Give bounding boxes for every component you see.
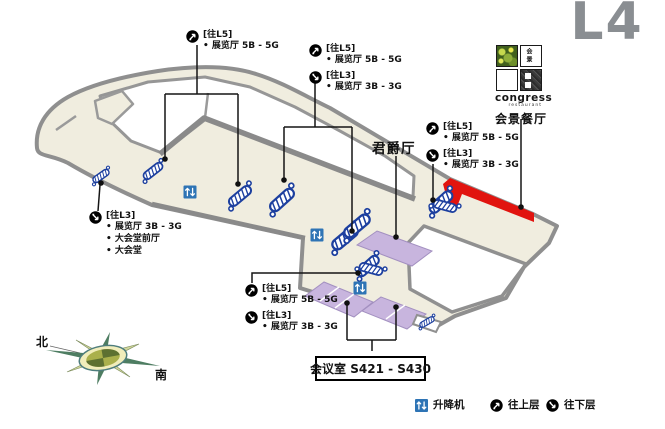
elevator-icon (354, 282, 367, 295)
callout-item: • 大会堂前厅 (106, 233, 182, 245)
callout-top-mid: [往L5] • 展览厅 5B - 5G [往L3] • 展览厅 3B - 3G (309, 44, 402, 98)
callout-tag: [往L3] (262, 311, 338, 321)
callout-bottom: [往L5] • 展览厅 5B - 5G [往L3] • 展览厅 3B - 3G (245, 284, 338, 338)
compass-north-label: 北 (36, 333, 48, 350)
callout-right: [往L5] • 展览厅 5B - 5G [往L3] • 展览厅 3B - 3G (426, 122, 519, 176)
down-level-icon (426, 149, 439, 162)
callout-dot (355, 270, 361, 276)
callout-item: • 展览厅 3B - 3G (443, 159, 519, 171)
meeting-rooms-box: 会议室 S421 - S430 (315, 356, 426, 381)
callout-dot (393, 304, 399, 310)
callout-dot (349, 228, 355, 234)
compass-rose (46, 332, 160, 385)
callout-left: [往L3] • 展览厅 3B - 3G • 大会堂前厅 • 大会堂 (89, 211, 182, 262)
callout-top-left: [往L5] • 展览厅 5B - 5G (186, 30, 279, 57)
callout-item: • 展览厅 5B - 5G (262, 294, 338, 306)
callout-dot (281, 177, 287, 183)
callout-dot (235, 181, 241, 187)
callout-item: • 展览厅 3B - 3G (262, 321, 338, 333)
callout-tag: [往L3] (106, 211, 182, 221)
callout-tag: [往L5] (262, 284, 338, 294)
callout-dot (98, 180, 104, 186)
down-level-icon (245, 311, 258, 324)
logo-noise-square (520, 69, 542, 91)
up-level-icon (309, 44, 322, 57)
elevator-icon (415, 399, 428, 412)
up-level-icon (490, 399, 503, 412)
callout-dot (430, 197, 436, 203)
logo-leaf-square (496, 45, 518, 67)
callout-dot (344, 300, 350, 306)
callout-tag: [往L5] (203, 30, 279, 40)
up-level-icon (186, 30, 199, 43)
legend-elevator-label: 升降机 (433, 399, 465, 412)
callout-dot (162, 156, 168, 162)
callout-line-left (98, 185, 100, 211)
legend-down: 往下层 (546, 399, 596, 412)
logo-blank-square (496, 69, 518, 91)
elevator-icon (184, 186, 197, 199)
callout-item: • 展览厅 5B - 5G (326, 54, 402, 66)
callout-dot (393, 234, 399, 240)
restaurant-name: 会景餐厅 (495, 110, 555, 127)
callout-item: • 大会堂 (106, 245, 182, 257)
callout-item: • 展览厅 5B - 5G (203, 40, 279, 52)
callout-item: • 展览厅 3B - 3G (326, 81, 402, 93)
level-title: L4 (556, 0, 658, 52)
floorplan-page: L4 [往L5] • 展览厅 5B - 5G [往L5] • 展览厅 5B - … (0, 0, 665, 429)
callout-tag: [往L3] (443, 149, 519, 159)
legend-up-label: 往上层 (508, 399, 540, 412)
compass-south-label: 南 (155, 366, 167, 383)
callout-item: • 展览厅 3B - 3G (106, 221, 182, 233)
restaurant-logo-subword: restaurant (495, 104, 542, 108)
restaurant-logo-image: 会 景 (496, 45, 542, 91)
down-level-icon (546, 399, 559, 412)
up-level-icon (245, 284, 258, 297)
legend-up: 往上层 (490, 399, 540, 412)
up-level-icon (426, 122, 439, 135)
down-level-icon (309, 71, 322, 84)
legend-down-label: 往下层 (564, 399, 596, 412)
callout-tag: [往L5] (326, 44, 402, 54)
legend-elevator: 升降机 (415, 399, 465, 412)
callout-item: • 展览厅 5B - 5G (443, 132, 519, 144)
restaurant-logo: 会 景 congress restaurant 会景餐厅 (495, 45, 555, 127)
chancellor-room-label: 君爵厅 (372, 137, 416, 157)
callout-dot (518, 204, 524, 210)
callout-tag: [往L3] (326, 71, 402, 81)
down-level-icon (89, 211, 102, 224)
logo-tiny-chars: 会 景 (524, 48, 532, 62)
elevator-icon (311, 229, 324, 242)
logo-chars-square: 会 景 (520, 45, 542, 67)
